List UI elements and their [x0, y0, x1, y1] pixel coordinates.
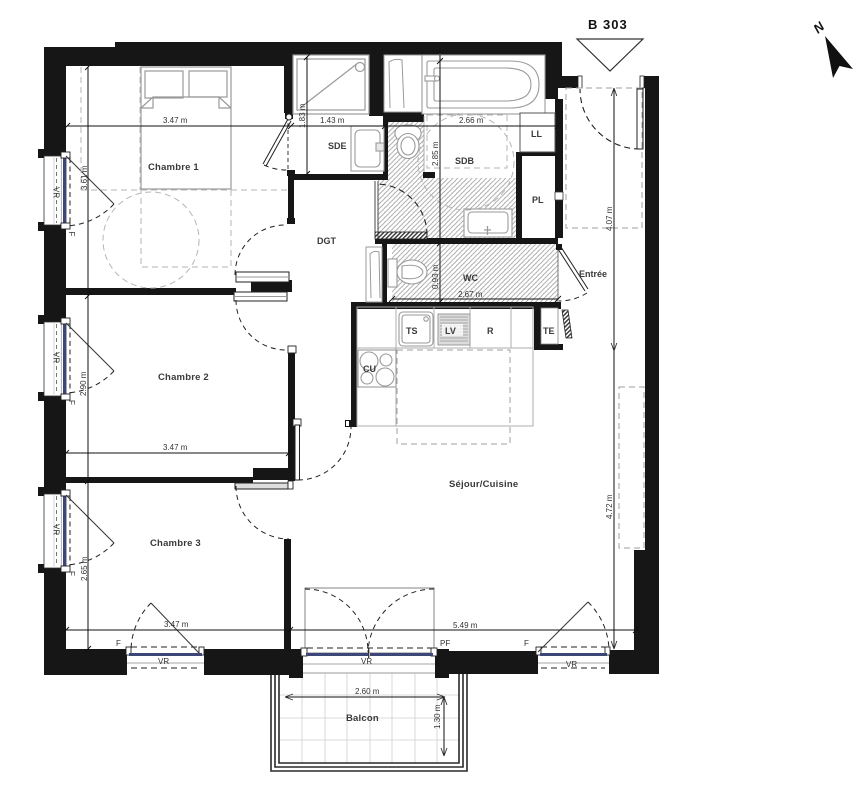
- svg-text:3.47 m: 3.47 m: [164, 620, 189, 629]
- svg-text:F: F: [116, 639, 121, 648]
- svg-text:1.83 m: 1.83 m: [298, 103, 307, 128]
- svg-text:F: F: [67, 232, 76, 237]
- svg-text:3.47 m: 3.47 m: [163, 116, 188, 125]
- svg-text:2.67 m: 2.67 m: [458, 290, 483, 299]
- svg-text:1.43 m: 1.43 m: [320, 116, 345, 125]
- svg-text:VR: VR: [52, 352, 61, 363]
- svg-text:5.49 m: 5.49 m: [453, 621, 478, 630]
- svg-text:WC: WC: [463, 273, 478, 283]
- svg-text:2.60 m: 2.60 m: [355, 687, 380, 696]
- svg-text:F: F: [67, 400, 76, 405]
- svg-text:TS: TS: [406, 326, 418, 336]
- svg-text:SDE: SDE: [328, 141, 347, 151]
- svg-text:LL: LL: [531, 129, 542, 139]
- svg-text:2.66 m: 2.66 m: [459, 116, 484, 125]
- svg-text:2.85 m: 2.85 m: [431, 141, 440, 166]
- svg-text:Chambre 3: Chambre 3: [150, 538, 201, 549]
- svg-text:Balcon: Balcon: [346, 713, 379, 724]
- svg-text:4.72 m: 4.72 m: [605, 494, 614, 519]
- svg-text:3.47 m: 3.47 m: [163, 443, 188, 452]
- svg-text:Chambre 1: Chambre 1: [148, 162, 199, 173]
- svg-text:VR: VR: [361, 657, 372, 666]
- svg-text:2.65 m: 2.65 m: [80, 556, 89, 581]
- svg-text:VR: VR: [52, 524, 61, 535]
- svg-text:4.07 m: 4.07 m: [605, 206, 614, 231]
- svg-text:LV: LV: [445, 326, 456, 336]
- svg-text:DGT: DGT: [317, 236, 337, 246]
- svg-text:F: F: [524, 639, 529, 648]
- svg-text:R: R: [487, 326, 494, 336]
- svg-text:VR: VR: [158, 657, 169, 666]
- svg-text:CU: CU: [363, 364, 376, 374]
- svg-text:TE: TE: [543, 326, 555, 336]
- svg-text:2.90 m: 2.90 m: [79, 371, 88, 396]
- svg-text:SDB: SDB: [455, 156, 475, 166]
- svg-text:B 303: B 303: [588, 17, 628, 32]
- svg-text:0.93 m: 0.93 m: [431, 264, 440, 289]
- svg-text:Séjour/Cuisine: Séjour/Cuisine: [449, 479, 518, 490]
- svg-text:3.61 m: 3.61 m: [80, 165, 89, 190]
- svg-text:F: F: [67, 571, 76, 576]
- svg-text:Entrée: Entrée: [579, 269, 607, 279]
- svg-text:VR: VR: [566, 660, 577, 669]
- svg-text:1.30 m: 1.30 m: [433, 704, 442, 729]
- svg-text:VR: VR: [52, 187, 61, 198]
- svg-text:PL: PL: [532, 195, 544, 205]
- svg-text:Chambre 2: Chambre 2: [158, 372, 209, 383]
- svg-text:PF: PF: [440, 639, 450, 648]
